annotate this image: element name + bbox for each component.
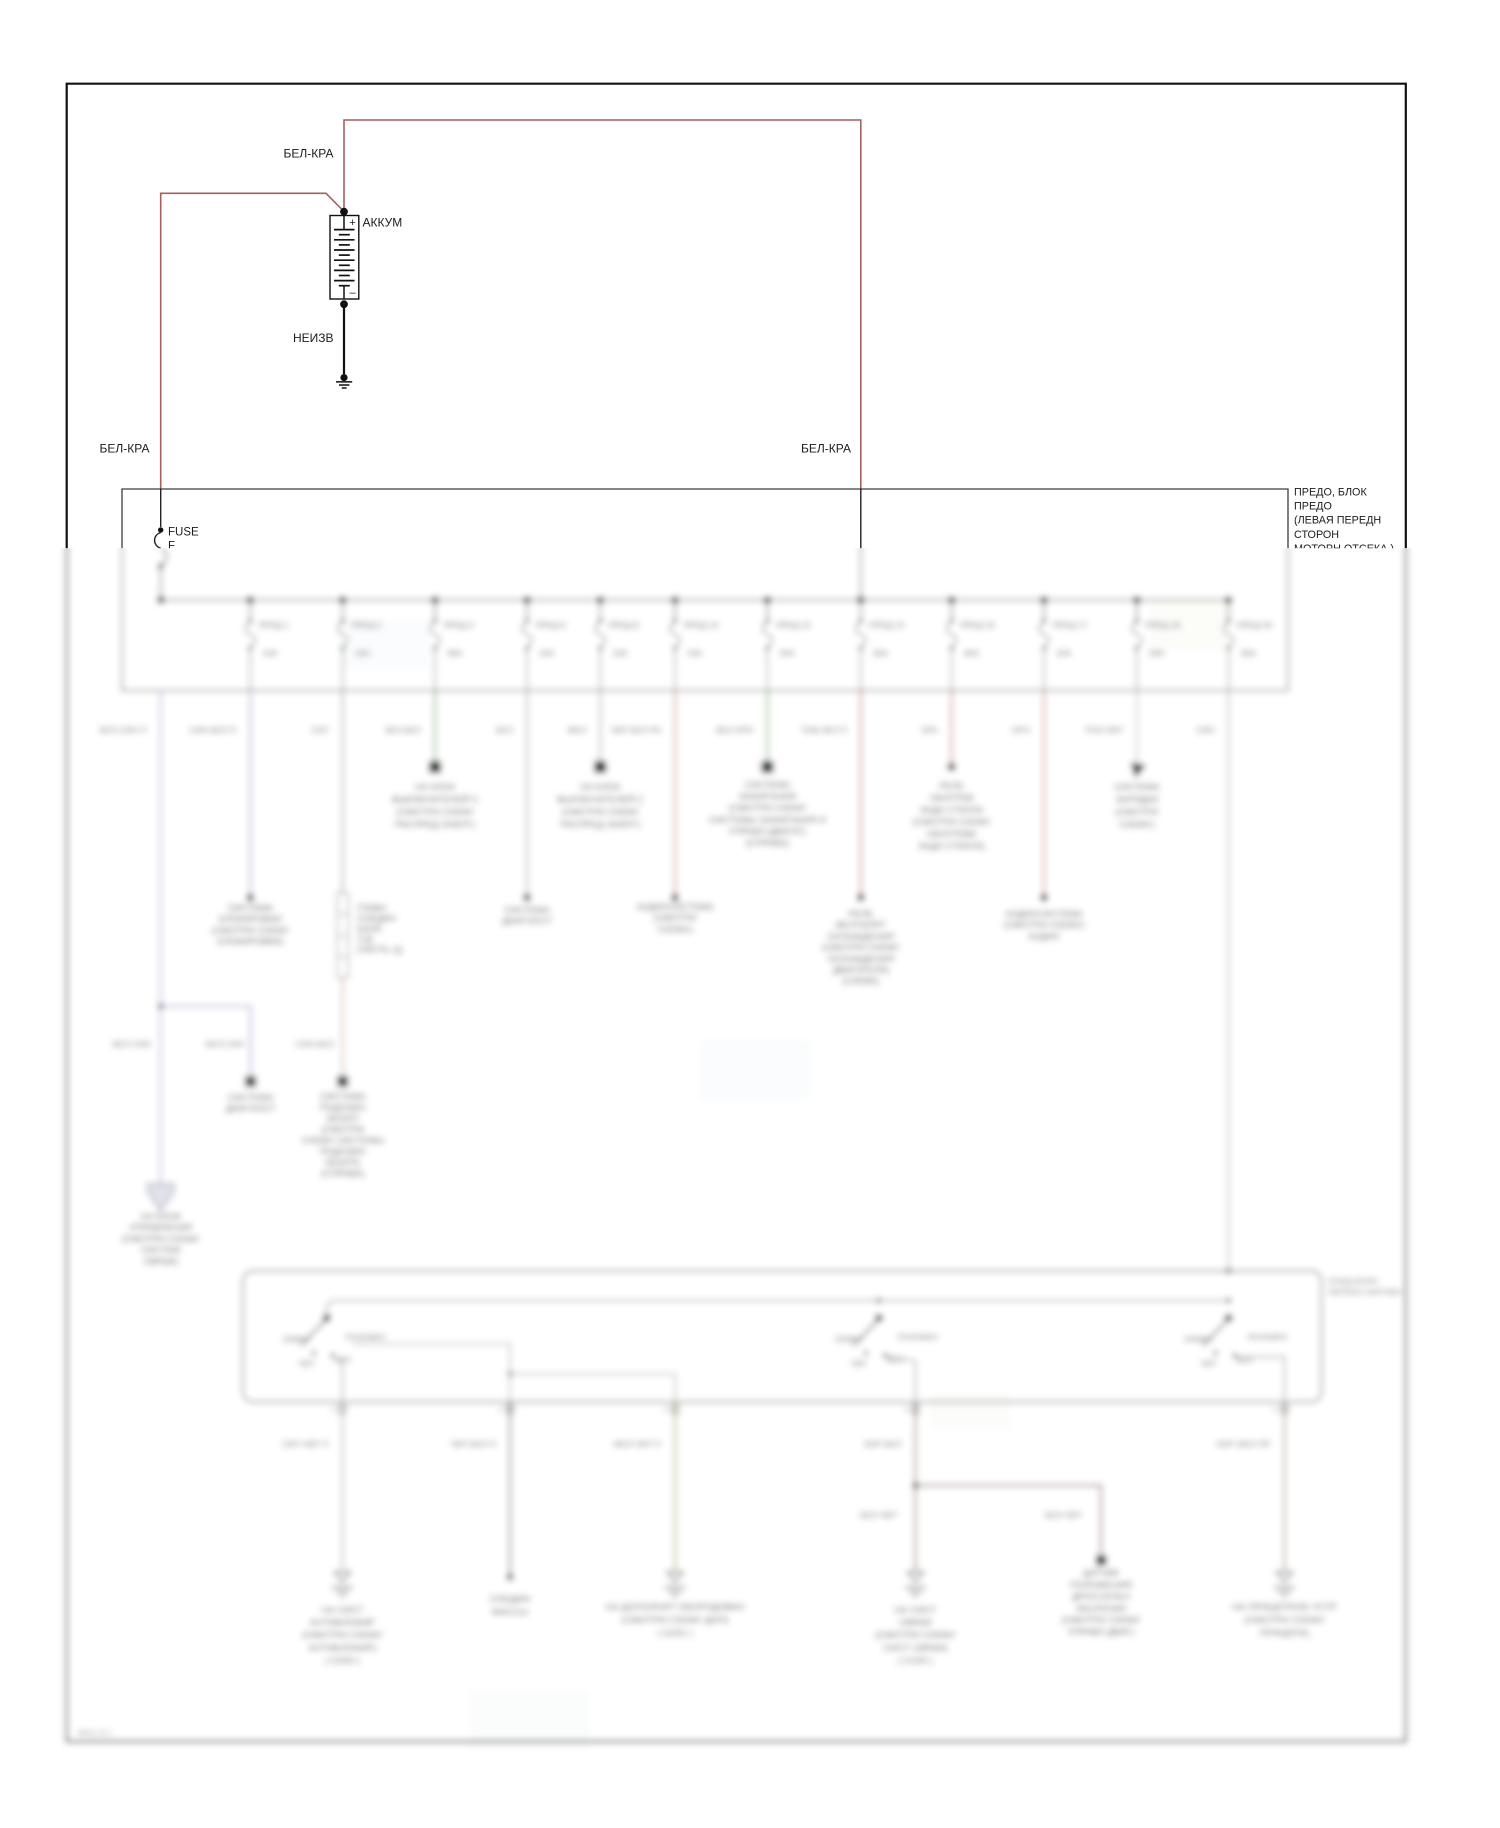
svg-text:МАССЫ: МАССЫ — [492, 1607, 529, 1618]
svg-text:СТОРОН: СТОРОН — [1294, 529, 1339, 541]
svg-text:СОЕД БЛОК: СОЕД БЛОК — [1328, 1276, 1378, 1286]
svg-text:(СМОТРИ СХЕМУ: (СМОТРИ СХЕМУ — [913, 817, 991, 827]
svg-text:ПРЕД 8: ПРЕД 8 — [608, 620, 639, 630]
svg-text:БЕЛ-КРА: БЕЛ-КРА — [801, 442, 851, 456]
svg-text:ДИАГНОСТ: ДИАГНОСТ — [502, 916, 553, 926]
svg-text:ЧЕР-БЕЛ П: ЧЕР-БЕЛ П — [450, 1439, 496, 1449]
svg-text:(СМОТРИ СХЕМУ: (СМОТРИ СХЕМУ — [875, 1630, 956, 1641]
svg-text:КОР-БЕЛ: КОР-БЕЛ — [864, 1439, 901, 1449]
svg-text:ЗАМКН: ЗАМКН — [834, 1334, 863, 1344]
svg-text:3: 3 — [663, 1407, 667, 1414]
svg-text:FUSE: FUSE — [168, 527, 199, 539]
svg-text:УПРАВЛ ДВИГАТ): УПРАВЛ ДВИГАТ) — [729, 826, 806, 836]
svg-text:15А: 15А — [687, 648, 703, 658]
svg-text:ПРИЦЕПА): ПРИЦЕПА) — [1259, 1628, 1309, 1639]
svg-text:ПРЕДО: ПРЕДО — [1294, 501, 1332, 513]
svg-text:ЗАЖИГАНИЯ: ЗАЖИГАНИЯ — [738, 792, 796, 802]
svg-text:(СМОТРИ СХЕМУ: (СМОТРИ СХЕМУ — [822, 943, 900, 953]
svg-text:ПРЕД 15: ПРЕД 15 — [960, 620, 996, 630]
svg-text:СИСТЕМА: СИСТЕМА — [1114, 782, 1160, 792]
svg-text:(СМОТРИ СХЕМУ): (СМОТРИ СХЕМУ) — [1003, 920, 1084, 930]
svg-text:ПРЕД 10: ПРЕД 10 — [683, 620, 719, 630]
svg-text:ВЕНТИЛЯТ: ВЕНТИЛЯТ — [836, 920, 886, 930]
svg-text:БЛОК: БЛОК — [357, 924, 382, 934]
svg-text:БЕЛ-СИН: БЕЛ-СИН — [206, 1039, 244, 1049]
svg-text:(СМОТРИ СХЕМУ: (СМОТРИ СХЕМУ — [1244, 1615, 1325, 1626]
svg-text:СИСТЕМА: СИСТЕМА — [320, 1092, 366, 1102]
svg-text:15А: 15А — [539, 648, 555, 658]
svg-text:СИСТЕМ: СИСТЕМ — [141, 1245, 180, 1255]
svg-text:(СМОТРИ СХЕМУ: (СМОТРИ СХЕМУ — [396, 807, 474, 817]
svg-text:РАСПРЕД ЭНЕРГ): РАСПРЕД ЭНЕРГ) — [395, 820, 475, 830]
svg-text:40А: 40А — [964, 648, 980, 658]
svg-text:РАСПРЕД ЭНЕРГ): РАСПРЕД ЭНЕРГ) — [560, 820, 640, 830]
svg-text:СИСТЕМА: СИСТЕМА — [227, 903, 273, 913]
svg-text:РАЗОМКН: РАЗОМКН — [346, 1332, 386, 1342]
svg-text:ПРЕД 6: ПРЕД 6 — [535, 620, 566, 630]
svg-text:БЕЛ: БЕЛ — [496, 725, 513, 735]
svg-text:РАЗОМКН: РАЗОМКН — [1248, 1332, 1288, 1342]
svg-text:СИСТ СВЯЗИ): СИСТ СВЯЗИ) — [883, 1643, 948, 1654]
svg-text:БЕЛ-КРА: БЕЛ-КРА — [100, 442, 150, 456]
svg-text:10А: 10А — [612, 648, 628, 658]
svg-text:3: 3 — [904, 1407, 908, 1414]
svg-text:БЕЛ-ЧЕР: БЕЛ-ЧЕР — [1045, 1510, 1082, 1520]
svg-text:БЕЛ-КРА: БЕЛ-КРА — [284, 147, 334, 161]
svg-text:ОБОГРЕВА: ОБОГРЕВА — [927, 829, 978, 839]
svg-text:ОРН: ОРН — [1011, 725, 1030, 735]
svg-text:ГЛАВН: ГЛАВН — [357, 903, 386, 913]
svg-text:ОБОГРЕВ: ОБОГРЕВ — [930, 793, 974, 803]
svg-text:СОЕДИН: СОЕДИН — [490, 1594, 531, 1605]
svg-text:СИСТЕМА: СИСТЕМА — [745, 780, 791, 790]
svg-text:СИСТЕМА: СИСТЕМА — [504, 905, 550, 915]
svg-text:ТЕМ-ЗЕЛ П: ТЕМ-ЗЕЛ П — [801, 725, 847, 735]
svg-text:КОР-ЖЕЛ ПР: КОР-ЖЕЛ ПР — [1217, 1439, 1271, 1449]
svg-text:УПРАВЛЕНИЯ: УПРАВЛЕНИЯ — [129, 1223, 192, 1233]
svg-text:ПРЕД 12: ПРЕД 12 — [775, 620, 811, 630]
svg-text:ЗАРЯДКИ: ЗАРЯДКИ — [1115, 795, 1158, 805]
svg-text:ДИАГНОСТ: ДИАГНОСТ — [225, 1104, 276, 1114]
svg-text:30А: 30А — [873, 648, 889, 658]
svg-text:30А: 30А — [447, 648, 463, 658]
svg-text:УПРАВЛ ДВИГ): УПРАВЛ ДВИГ) — [1067, 1626, 1134, 1637]
svg-text:СИСТЕМЫ ЗАЖИГАНИЯ И: СИСТЕМЫ ЗАЖИГАНИЯ И — [709, 815, 826, 825]
svg-text:(СМОТРИ СХЕМУ: (СМОТРИ СХЕМУ — [1062, 1614, 1141, 1625]
svg-text:(СМОТРИ СХЕМУ: (СМОТРИ СХЕМУ — [728, 803, 806, 813]
svg-text:АУДИОСИСТЕМА: АУДИОСИСТЕМА — [1005, 909, 1083, 919]
svg-text:НА ДОПОЛНИТ ОБОРУДОВАН: НА ДОПОЛНИТ ОБОРУДОВАН — [605, 1602, 744, 1613]
svg-text:ВЫКЛЮЧАТЕЛЕЙ С: ВЫКЛЮЧАТЕЛЕЙ С — [557, 794, 644, 805]
svg-text:(СМОТРИ СХЕМУ: (СМОТРИ СХЕМУ — [302, 1630, 383, 1641]
svg-text:НА БЛОК: НА БЛОК — [415, 782, 456, 792]
svg-text:РЕЛЕ: РЕЛЕ — [848, 909, 873, 919]
svg-text:(СЛЕВА): (СЛЕВА) — [842, 976, 879, 986]
svg-text:БЕЛ-СИН П: БЕЛ-СИН П — [100, 725, 147, 735]
svg-text:ЗЕЛ-БЕЛ: ЗЕЛ-БЕЛ — [385, 725, 421, 735]
svg-text:ПРЕД 19: ПРЕД 19 — [1145, 620, 1181, 630]
svg-text:ЧЕР: ЧЕР — [1200, 1360, 1217, 1369]
svg-text:ЗАДН СТЕКЛА): ЗАДН СТЕКЛА) — [918, 841, 985, 851]
svg-text:ПРЕД 17: ПРЕД 17 — [1052, 620, 1088, 630]
svg-text:( G200 ): ( G200 ) — [325, 1655, 360, 1666]
svg-text:(ЛЕВАЯ ПЕРЕДН: (ЛЕВАЯ ПЕРЕДН — [1294, 515, 1381, 527]
svg-text:РАЗОМКН: РАЗОМКН — [898, 1332, 938, 1342]
svg-text:ПРЕД 14: ПРЕД 14 — [869, 620, 905, 630]
svg-text:БЕЛ-ЧЕР: БЕЛ-ЧЕР — [860, 1510, 897, 1520]
svg-text:30А: 30А — [1241, 648, 1257, 658]
svg-text:3: 3 — [331, 1407, 335, 1414]
svg-text:ПОЛОЖЕНИЯ: ПОЛОЖЕНИЯ — [1070, 1579, 1132, 1590]
svg-text:СИН-БЕЛ: СИН-БЕЛ — [296, 1039, 334, 1049]
svg-text:ВЫКЛЮЧАТЕЛЕЙ С: ВЫКЛЮЧАТЕЛЕЙ С — [392, 794, 479, 805]
svg-text:БЕЗОП): БЕЗОП) — [325, 1158, 360, 1168]
svg-text:20А: 20А — [1149, 648, 1165, 658]
svg-text:НА СИСТ: НА СИСТ — [321, 1605, 363, 1616]
svg-text:ЗЕЛ-ОРН: ЗЕЛ-ОРН — [715, 725, 753, 735]
svg-text:15А: 15А — [355, 648, 371, 658]
svg-text:(СМОТРИ: (СМОТРИ — [321, 1125, 364, 1135]
svg-text:(СМОТРИ: (СМОТРИ — [1115, 807, 1158, 817]
svg-text:20А: 20А — [779, 648, 795, 658]
svg-text:ПРЕД 20: ПРЕД 20 — [1237, 620, 1273, 630]
svg-text:БЛОКИРОВКИ: БЛОКИРОВКИ — [219, 914, 282, 924]
svg-text:НЕИЗВ: НЕИЗВ — [293, 331, 334, 345]
svg-text:РЕЛЕ: РЕЛЕ — [939, 781, 964, 791]
svg-text:ЗАДН СТЕКЛА: ЗАДН СТЕКЛА — [920, 805, 985, 815]
svg-text:ДАТЧИК: ДАТЧИК — [1083, 1567, 1120, 1578]
svg-text:ЗАСЛОНКИ: ЗАСЛОНКИ — [1076, 1602, 1127, 1613]
svg-text:АУДИО: АУДИО — [1028, 931, 1060, 941]
svg-text:БЕЗОП: БЕЗОП — [327, 1114, 359, 1124]
svg-text:(СПРАВА): (СПРАВА) — [746, 838, 789, 848]
svg-text:НА БЛОК: НА БЛОК — [580, 782, 621, 792]
svg-text:(СМОТРИ СХЕМУ ДОП): (СМОТРИ СХЕМУ ДОП) — [621, 1615, 728, 1626]
svg-text:3: 3 — [1273, 1407, 1277, 1414]
svg-text:( G100 ): ( G100 ) — [898, 1655, 933, 1666]
svg-text:ПРЕД 1: ПРЕД 1 — [258, 620, 289, 630]
svg-text:СХЕМУ): СХЕМУ) — [657, 924, 692, 934]
svg-text:СИСТЕМА: СИСТЕМА — [228, 1093, 274, 1103]
svg-text:(СМОТРИ СХЕМУ: (СМОТРИ СХЕМУ — [211, 925, 289, 935]
svg-text:ЗАМКН: ЗАМКН — [1184, 1334, 1213, 1344]
svg-text:БЛОКИРОВКИ): БЛОКИРОВКИ) — [217, 937, 283, 947]
svg-text:ОХЛАЖДЕНИЯ: ОХЛАЖДЕНИЯ — [828, 954, 895, 964]
svg-text:( G201 ): ( G201 ) — [657, 1628, 692, 1639]
svg-text:СИН-БЕЛ П: СИН-БЕЛ П — [189, 725, 236, 735]
svg-text:10А: 10А — [262, 648, 278, 658]
svg-text:(СМОТРИ СХЕМУ: (СМОТРИ СХЕМУ — [561, 807, 639, 817]
svg-text:ПРЕД 4: ПРЕД 4 — [443, 620, 474, 630]
svg-text:МИЦ 16-1: МИЦ 16-1 — [78, 1728, 112, 1737]
svg-text:ЖЕЛ-ЧЕР П: ЖЕЛ-ЧЕР П — [613, 1439, 661, 1449]
svg-text:3: 3 — [498, 1407, 502, 1414]
svg-text:СЕР-ЧЕР П: СЕР-ЧЕР П — [282, 1439, 328, 1449]
svg-text:БЕЛ-СИН: БЕЛ-СИН — [113, 1039, 151, 1049]
svg-text:+: + — [349, 217, 355, 229]
svg-text:СВЯЗИ): СВЯЗИ) — [143, 1256, 178, 1266]
svg-text:СОЕДИН: СОЕДИН — [357, 913, 396, 923]
svg-text:НА ПРИЦЕПНОЕ УСТР: НА ПРИЦЕПНОЕ УСТР — [1232, 1602, 1337, 1613]
svg-text:ПОДУШЕК: ПОДУШЕК — [320, 1103, 367, 1113]
svg-text:КРА: КРА — [922, 725, 938, 735]
svg-text:НА СИСТ: НА СИСТ — [894, 1605, 936, 1616]
svg-text:ЗАМКН: ЗАМКН — [282, 1334, 311, 1344]
svg-text:ЧЕР: ЧЕР — [851, 1360, 868, 1369]
svg-text:(СПРАВА): (СПРАВА) — [321, 1169, 364, 1179]
svg-text:ОХЛАЖДЕНИЯ: ОХЛАЖДЕНИЯ — [828, 931, 895, 941]
svg-text:АУДИОСИСТЕМА: АУДИОСИСТЕМА — [636, 902, 714, 912]
svg-text:(СМОТРИ СХЕМУ: (СМОТРИ СХЕМУ — [122, 1234, 200, 1244]
svg-text:СЕР: СЕР — [311, 725, 329, 735]
svg-text:СВЯЗИ: СВЯЗИ — [899, 1618, 932, 1629]
svg-text:–: – — [349, 287, 356, 299]
svg-text:С/Д: С/Д — [357, 934, 373, 944]
svg-text:ДРОССЕЛЬН: ДРОССЕЛЬН — [1072, 1591, 1131, 1602]
svg-text:ЧЕР: ЧЕР — [298, 1360, 315, 1369]
svg-text:ЧЕР-БЕЛ РА: ЧЕР-БЕЛ РА — [611, 725, 662, 735]
svg-text:СХЕМУ): СХЕМУ) — [1119, 820, 1154, 830]
svg-text:(СМОТРИ: (СМОТРИ — [653, 913, 696, 923]
svg-text:СХЕМУ СИСТЕМЫ: СХЕМУ СИСТЕМЫ — [301, 1136, 383, 1146]
svg-text:ПРЕД 2: ПРЕД 2 — [351, 620, 382, 630]
svg-text:ЖЕЛ: ЖЕЛ — [567, 725, 586, 735]
svg-text:ДВИГАТЕЛЯ): ДВИГАТЕЛЯ) — [832, 965, 889, 975]
svg-text:ПЕРЕКЛ НАРУЖН: ПЕРЕКЛ НАРУЖН — [1328, 1287, 1402, 1297]
svg-text:(ЧАСТЬ Ц): (ЧАСТЬ Ц) — [357, 945, 403, 955]
svg-text:15А: 15А — [1056, 648, 1072, 658]
svg-text:ПРЕДО, БЛОК: ПРЕДО, БЛОК — [1294, 487, 1367, 499]
svg-text:АНТИБЛОКИР: АНТИБЛОКИР — [310, 1618, 375, 1629]
svg-text:ПОДУШЕК: ПОДУШЕК — [320, 1147, 367, 1157]
svg-text:СИН: СИН — [1196, 725, 1215, 735]
svg-text:НА БЛОК: НА БЛОК — [141, 1212, 182, 1222]
svg-text:РОЗ-ЧЕР: РОЗ-ЧЕР — [1085, 725, 1123, 735]
svg-text:АККУМ: АККУМ — [363, 216, 403, 230]
svg-text:АНТИБЛОКИР): АНТИБЛОКИР) — [308, 1643, 376, 1654]
